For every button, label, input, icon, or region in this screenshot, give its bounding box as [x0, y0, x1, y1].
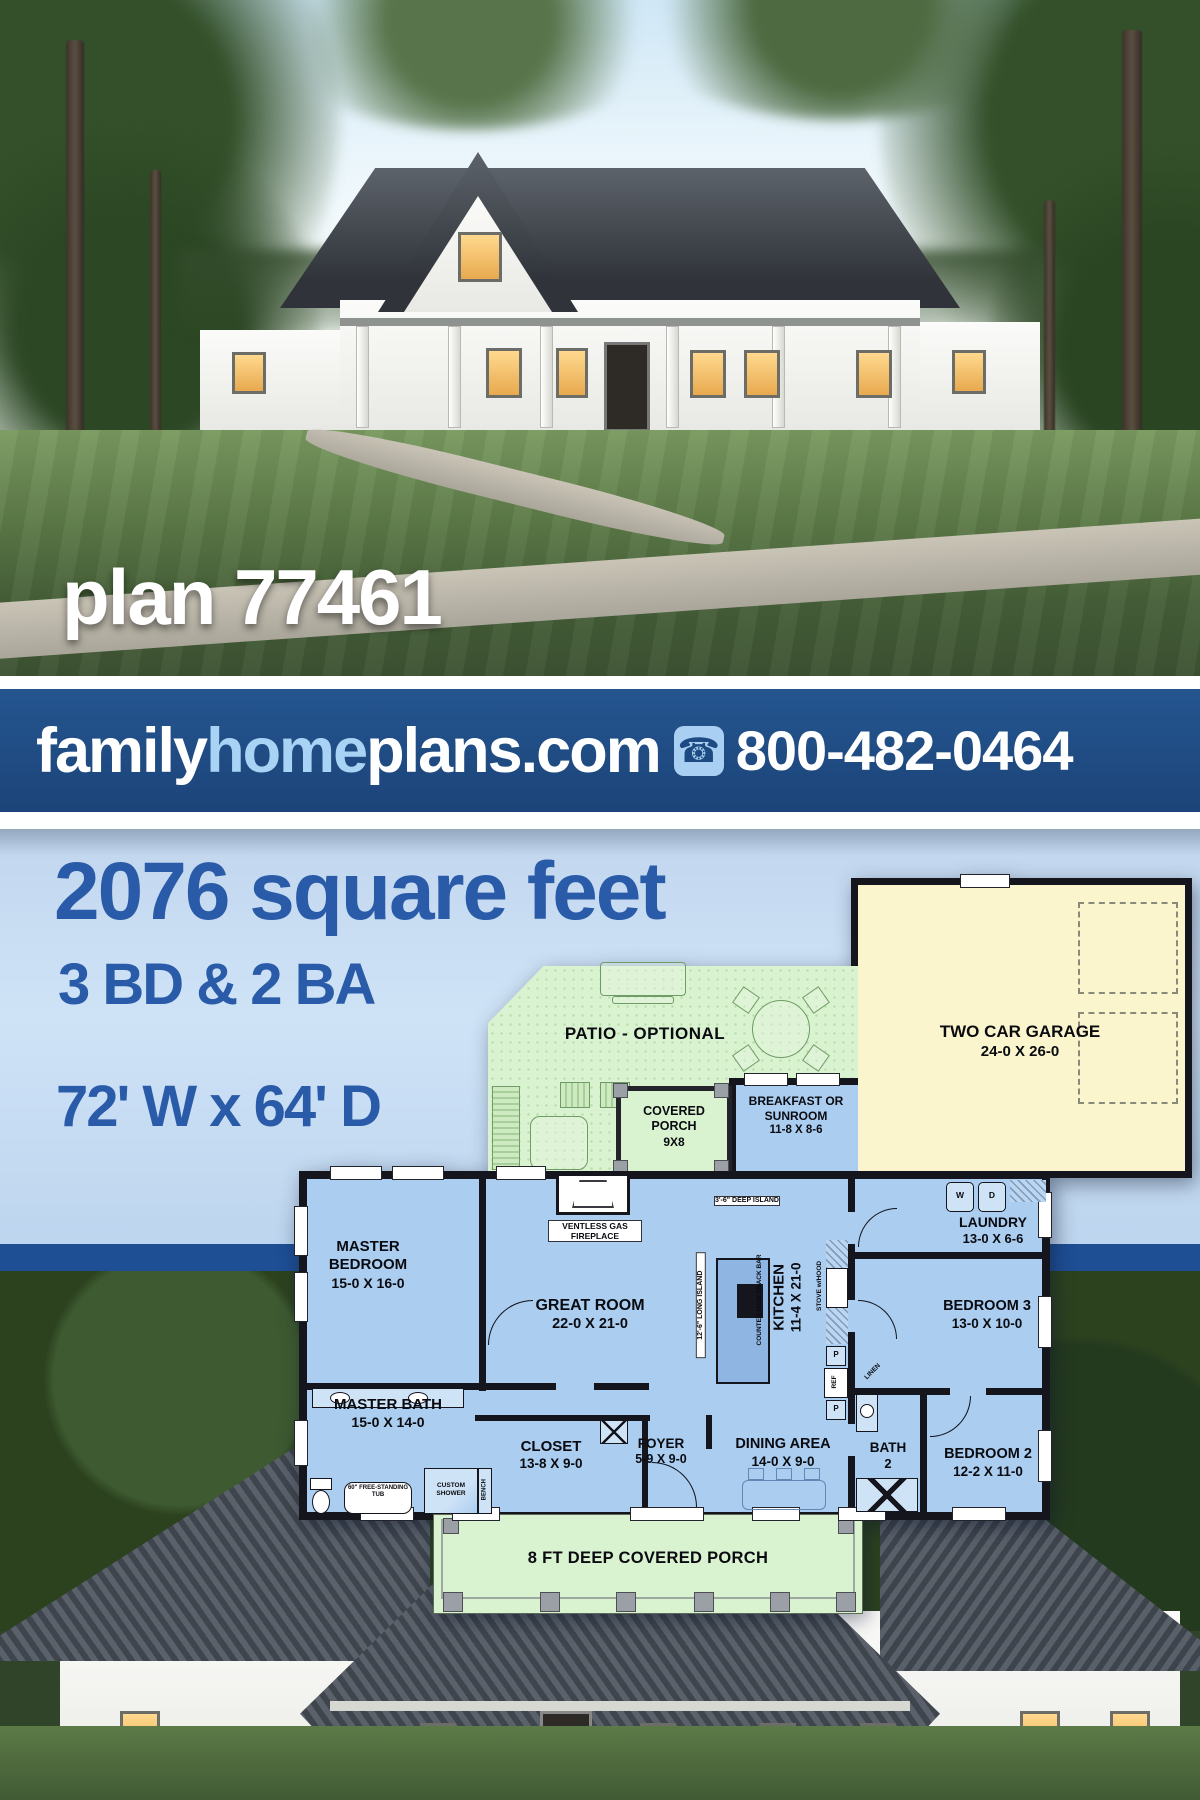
porch-post	[616, 1592, 636, 1612]
room-label-covered-porch: COVERED PORCH9X8	[624, 1104, 724, 1149]
laundry-cabinet	[1010, 1180, 1046, 1202]
dining-table-icon	[742, 1480, 826, 1510]
dryer-label: D	[978, 1190, 1006, 1200]
window	[496, 1166, 546, 1180]
room-label-foyer: FOYER5-9 X 9-0	[620, 1436, 702, 1468]
front-door-opening	[630, 1507, 704, 1521]
room-label-bedroom3: BEDROOM 313-0 X 10-0	[926, 1298, 1048, 1332]
garage-door-outline	[1078, 902, 1178, 994]
porch-post	[770, 1592, 790, 1612]
room-label-master-bedroom: MASTER BEDROOM15-0 X 16-0	[306, 1238, 430, 1292]
patio-side-table-icon	[530, 1116, 588, 1170]
room-label-sunroom: BREAKFAST OR SUNROOM11-8 X 8-6	[740, 1094, 852, 1137]
stove-icon	[826, 1268, 848, 1308]
snack-bar-label: COUNTER HIGH SNACK BAR	[756, 1240, 764, 1360]
wall	[848, 1252, 1050, 1259]
garage-side-door	[960, 874, 1010, 888]
grill-knobs	[612, 996, 674, 1004]
toilet-icon	[310, 1478, 332, 1490]
washer-label: W	[946, 1190, 974, 1200]
window	[952, 1507, 1006, 1521]
window	[392, 1166, 444, 1180]
porch-post	[443, 1592, 463, 1612]
door-opening	[950, 1388, 986, 1395]
room-label-laundry: LAUNDRY13-0 X 6-6	[934, 1214, 1052, 1247]
island-deep-label: 3'-6" DEEP ISLAND	[714, 1196, 780, 1206]
room-label-dining: DINING AREA14-0 X 9-0	[712, 1436, 854, 1470]
porch-post	[836, 1592, 856, 1612]
toilet-icon	[312, 1490, 330, 1514]
wall	[479, 1171, 486, 1391]
room-label-great-room: GREAT ROOM22-0 X 21-0	[502, 1296, 678, 1333]
island-long-label: 12'-6" LONG ISLAND	[696, 1252, 706, 1358]
room-label-master-bath: MASTER BATH15-0 X 14-0	[312, 1396, 464, 1431]
patio-table-icon	[752, 1000, 810, 1058]
window	[744, 1073, 788, 1086]
room-label-patio: PATIO - OPTIONAL	[540, 1024, 750, 1045]
door-opening	[848, 1300, 855, 1332]
lounge-chair-icon	[560, 1082, 590, 1108]
bath2-tub	[856, 1478, 918, 1512]
window	[294, 1420, 308, 1466]
room-label-bedroom2: BEDROOM 212-2 X 11-0	[928, 1446, 1048, 1480]
fireplace-label: VENTLESS GAS FIREPLACE	[548, 1220, 642, 1242]
hot-tub-icon	[492, 1086, 520, 1170]
porch-post	[540, 1592, 560, 1612]
room-label-garage: TWO CAR GARAGE24-0 X 26-0	[880, 1022, 1160, 1061]
tub-label: 60" FREE-STANDING TUB	[345, 1485, 411, 1500]
porch-post	[714, 1083, 729, 1098]
floor-plan: VENTLESS GAS FIREPLACE COUNTER HIGH SNAC…	[0, 0, 1200, 1800]
wall	[848, 1388, 1050, 1395]
porch-post	[694, 1592, 714, 1612]
window	[796, 1073, 840, 1086]
wall	[920, 1388, 927, 1516]
grill-icon	[600, 962, 686, 996]
shower-label: CUSTOM SHOWER	[425, 1482, 477, 1498]
room-label-front-porch: 8 FT DEEP COVERED PORCH	[468, 1548, 828, 1568]
room-label-bath2: BATH2	[858, 1440, 918, 1472]
porch-post	[613, 1083, 628, 1098]
pantry-label: P	[826, 1404, 846, 1414]
room-label-kitchen: KITCHEN11-4 X 21-0	[771, 1231, 806, 1363]
bath2-sink-bowl	[860, 1404, 874, 1418]
door-opening	[848, 1212, 855, 1244]
stove-label: STOVE w/HOOD	[816, 1236, 824, 1336]
window	[330, 1166, 382, 1180]
room-label-closet: CLOSET13-8 X 9-0	[498, 1438, 604, 1473]
door-opening	[556, 1383, 594, 1390]
bench-label: BENCH	[481, 1467, 488, 1513]
